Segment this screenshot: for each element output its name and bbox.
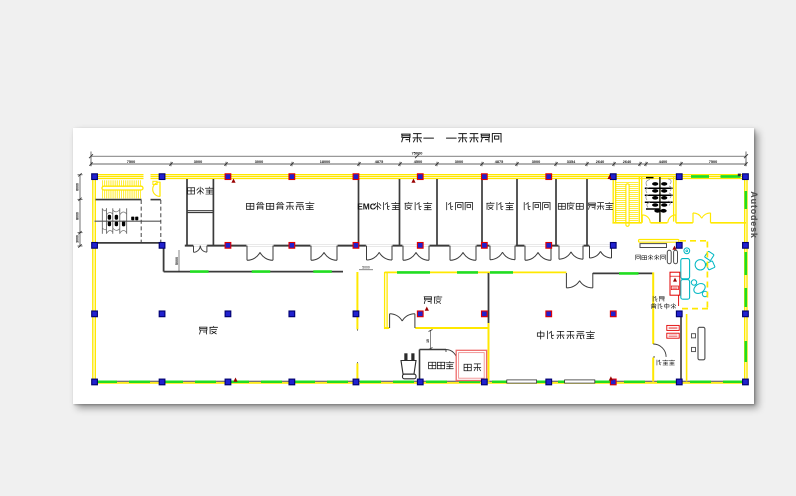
svg-text:7500: 7500 (709, 160, 717, 164)
svg-text:3354: 3354 (567, 160, 576, 164)
svg-text:3000: 3000 (255, 160, 263, 164)
svg-text:2640: 2640 (623, 160, 631, 164)
svg-text:4875: 4875 (375, 160, 383, 164)
svg-text:4875: 4875 (495, 160, 503, 164)
svg-text:3000: 3000 (194, 160, 202, 164)
svg-text:3000: 3000 (532, 160, 540, 164)
svg-text:3000: 3000 (76, 235, 80, 243)
svg-text:Autodesk: Autodesk (749, 191, 759, 239)
svg-text:7500: 7500 (127, 160, 135, 164)
svg-text:5000: 5000 (175, 257, 179, 265)
svg-text:4500: 4500 (414, 160, 422, 164)
svg-text:4400: 4400 (659, 160, 667, 164)
svg-text:15: 15 (426, 339, 430, 343)
svg-text:6000: 6000 (76, 183, 80, 191)
svg-text:2640: 2640 (596, 160, 604, 164)
svg-text:3000: 3000 (455, 160, 463, 164)
svg-text:8000: 8000 (76, 212, 80, 220)
svg-text:5000: 5000 (362, 265, 370, 269)
svg-text:EMC: EMC (357, 202, 376, 212)
svg-text:75000: 75000 (412, 151, 423, 156)
svg-text:18000: 18000 (320, 160, 331, 164)
